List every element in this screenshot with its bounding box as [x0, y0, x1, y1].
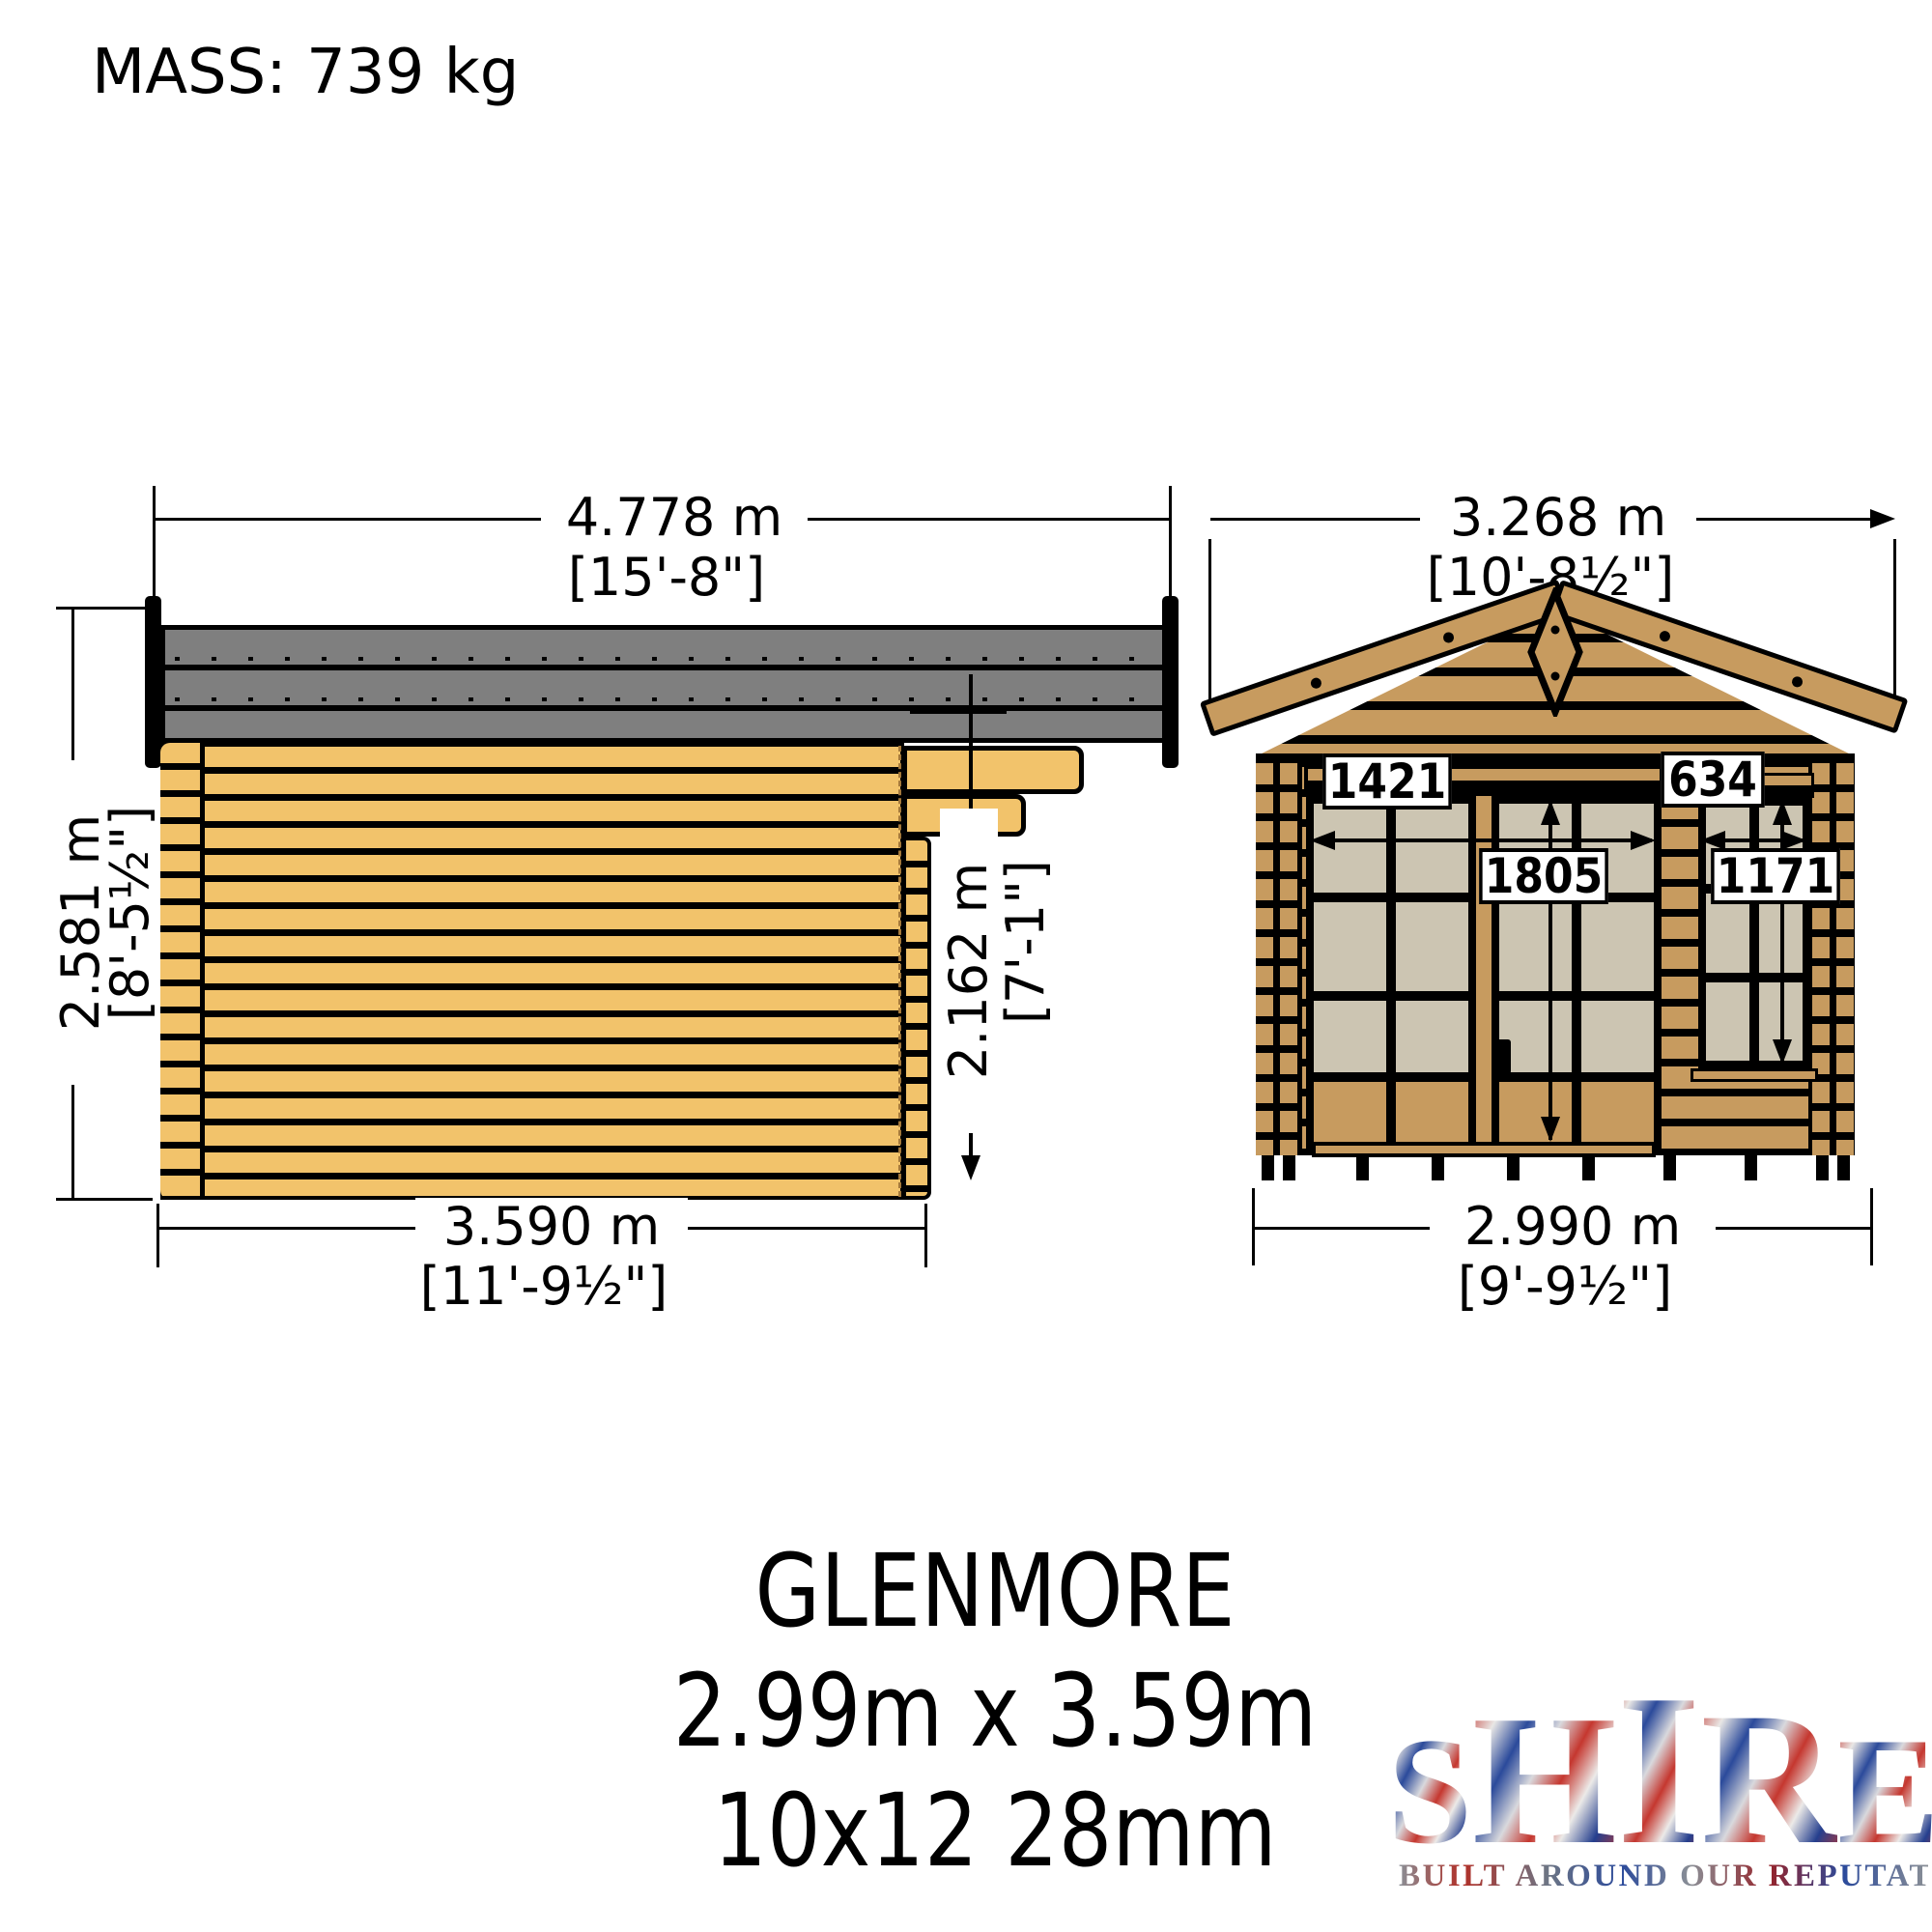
door-leaf-left — [1314, 804, 1468, 1148]
door-width-dim-line — [1316, 838, 1652, 842]
door-height-arrow-up — [1541, 800, 1560, 825]
side-width-ext-left — [153, 486, 156, 613]
product-name: GLENMORE — [589, 1534, 1401, 1648]
door-height-label: 1805 — [1479, 848, 1608, 904]
roof-finial-diamond-icon — [1526, 587, 1584, 717]
window-width-arrow-right — [1781, 831, 1806, 850]
door-handle-icon — [1495, 1039, 1511, 1074]
front-width-arrow — [1870, 509, 1895, 528]
floor-bearer — [1283, 1155, 1295, 1180]
barge-screw-icon — [1309, 676, 1322, 690]
floor-bearer — [1582, 1155, 1595, 1180]
side-width-imperial: [15'-8"] — [541, 549, 792, 607]
window-width-label: 634 — [1661, 752, 1764, 808]
floor-bearer — [1745, 1155, 1757, 1180]
logo-letter: H — [1472, 1692, 1616, 1868]
floor-bearer — [1816, 1155, 1829, 1180]
side-canopy-beam-top — [902, 746, 1084, 794]
canopy-height-imperial: [7'-1"] — [997, 787, 1055, 1096]
floor-bearer — [1837, 1155, 1850, 1180]
side-front-log-ends — [902, 837, 931, 1200]
door-width-arrow-right — [1631, 831, 1656, 850]
logo-letter: R — [1701, 1690, 1838, 1869]
side-width-metric: 4.778 m — [541, 489, 808, 547]
barge-screw-icon — [1791, 675, 1804, 689]
floor-bearer — [1663, 1155, 1676, 1180]
window-pane — [1706, 894, 1749, 972]
canopy-dim-arrow-down — [961, 1155, 980, 1180]
logo-letter: S — [1387, 1719, 1472, 1864]
side-fascia-right — [1162, 596, 1179, 768]
front-base-imperial: [9'-9½"] — [1430, 1258, 1700, 1316]
door-pane — [1314, 1001, 1386, 1072]
door-pane — [1581, 1001, 1654, 1072]
door-width-arrow-left — [1310, 831, 1335, 850]
window-height-dim-line — [1780, 804, 1784, 1063]
roof-felt-ticks-2 — [175, 697, 1156, 701]
door-pane — [1581, 902, 1654, 991]
side-roof — [160, 625, 1171, 743]
door-pane — [1499, 902, 1572, 991]
window-height-arrow-up — [1773, 800, 1792, 825]
shire-logo: S H I R E BUILT AROUND OUR REPUTATION — [1399, 1667, 1928, 1903]
shire-logo-wordmark: S H I R E — [1399, 1667, 1928, 1857]
logo-letter: I — [1617, 1667, 1701, 1873]
door-pane — [1396, 804, 1468, 893]
door-height-arrow-down — [1541, 1117, 1560, 1142]
window-pane — [1706, 982, 1749, 1061]
door-panel — [1499, 1082, 1572, 1148]
side-front-wall-dashed-line — [898, 746, 901, 1197]
door-panel — [1581, 1082, 1654, 1148]
canopy-height-metric: 2.162 m — [940, 809, 998, 1133]
door-pane — [1396, 1001, 1468, 1072]
floor-bearer — [1432, 1155, 1444, 1180]
window-width-arrow-left — [1700, 831, 1725, 850]
side-corner-log-ends — [160, 743, 205, 1200]
door-panel — [1396, 1082, 1468, 1148]
side-height-tick-bottom — [56, 1198, 153, 1201]
side-depth-ext-left — [156, 1204, 159, 1267]
side-width-ext-right — [1169, 486, 1172, 613]
barge-screw-icon — [1442, 631, 1456, 644]
window-height-label: 1171 — [1711, 848, 1840, 904]
barge-screw-icon — [1658, 630, 1671, 643]
canopy-dim-tick — [910, 710, 1007, 714]
product-size-spec: 10x12 28mm — [589, 1774, 1401, 1888]
front-corner-log-ends-left — [1256, 763, 1302, 1155]
front-base-metric: 2.990 m — [1430, 1198, 1716, 1256]
window-height-arrow-down — [1773, 1039, 1792, 1065]
side-depth-imperial: [11'-9½"] — [415, 1258, 672, 1316]
door-pane — [1314, 902, 1386, 991]
door-pane — [1396, 902, 1468, 991]
floor-bearer — [1262, 1155, 1274, 1180]
window-sill — [1690, 1068, 1818, 1082]
floor-bearer — [1507, 1155, 1520, 1180]
product-size-metric: 2.99m x 3.59m — [589, 1654, 1401, 1768]
side-depth-ext-right — [924, 1204, 927, 1267]
side-fascia-left — [145, 596, 161, 768]
front-width-metric: 3.268 m — [1420, 489, 1696, 547]
front-corner-log-ends-right — [1808, 763, 1855, 1155]
side-height-tick-top — [56, 607, 153, 610]
shire-logo-tagline: BUILT AROUND OUR REPUTATION — [1399, 1859, 1928, 1894]
side-height-imperial: [8'-5½"] — [101, 758, 159, 1067]
canopy-dim-stub — [969, 674, 973, 710]
logo-letter: E — [1837, 1719, 1932, 1864]
door-width-label: 1421 — [1322, 753, 1452, 810]
front-width-ext-right — [1893, 539, 1896, 708]
mass-label: MASS: 739 kg — [92, 37, 519, 108]
roof-felt-ticks-1 — [175, 657, 1156, 661]
side-wall — [160, 743, 904, 1200]
side-depth-metric: 3.590 m — [415, 1198, 688, 1256]
technical-drawing-sheet: MASS: 739 kg 4.778 m [15'-8"] 2.581 m [8… — [0, 0, 1932, 1932]
front-width-ext-left — [1208, 539, 1211, 723]
floor-bearer — [1356, 1155, 1369, 1180]
door-panel — [1314, 1082, 1386, 1148]
